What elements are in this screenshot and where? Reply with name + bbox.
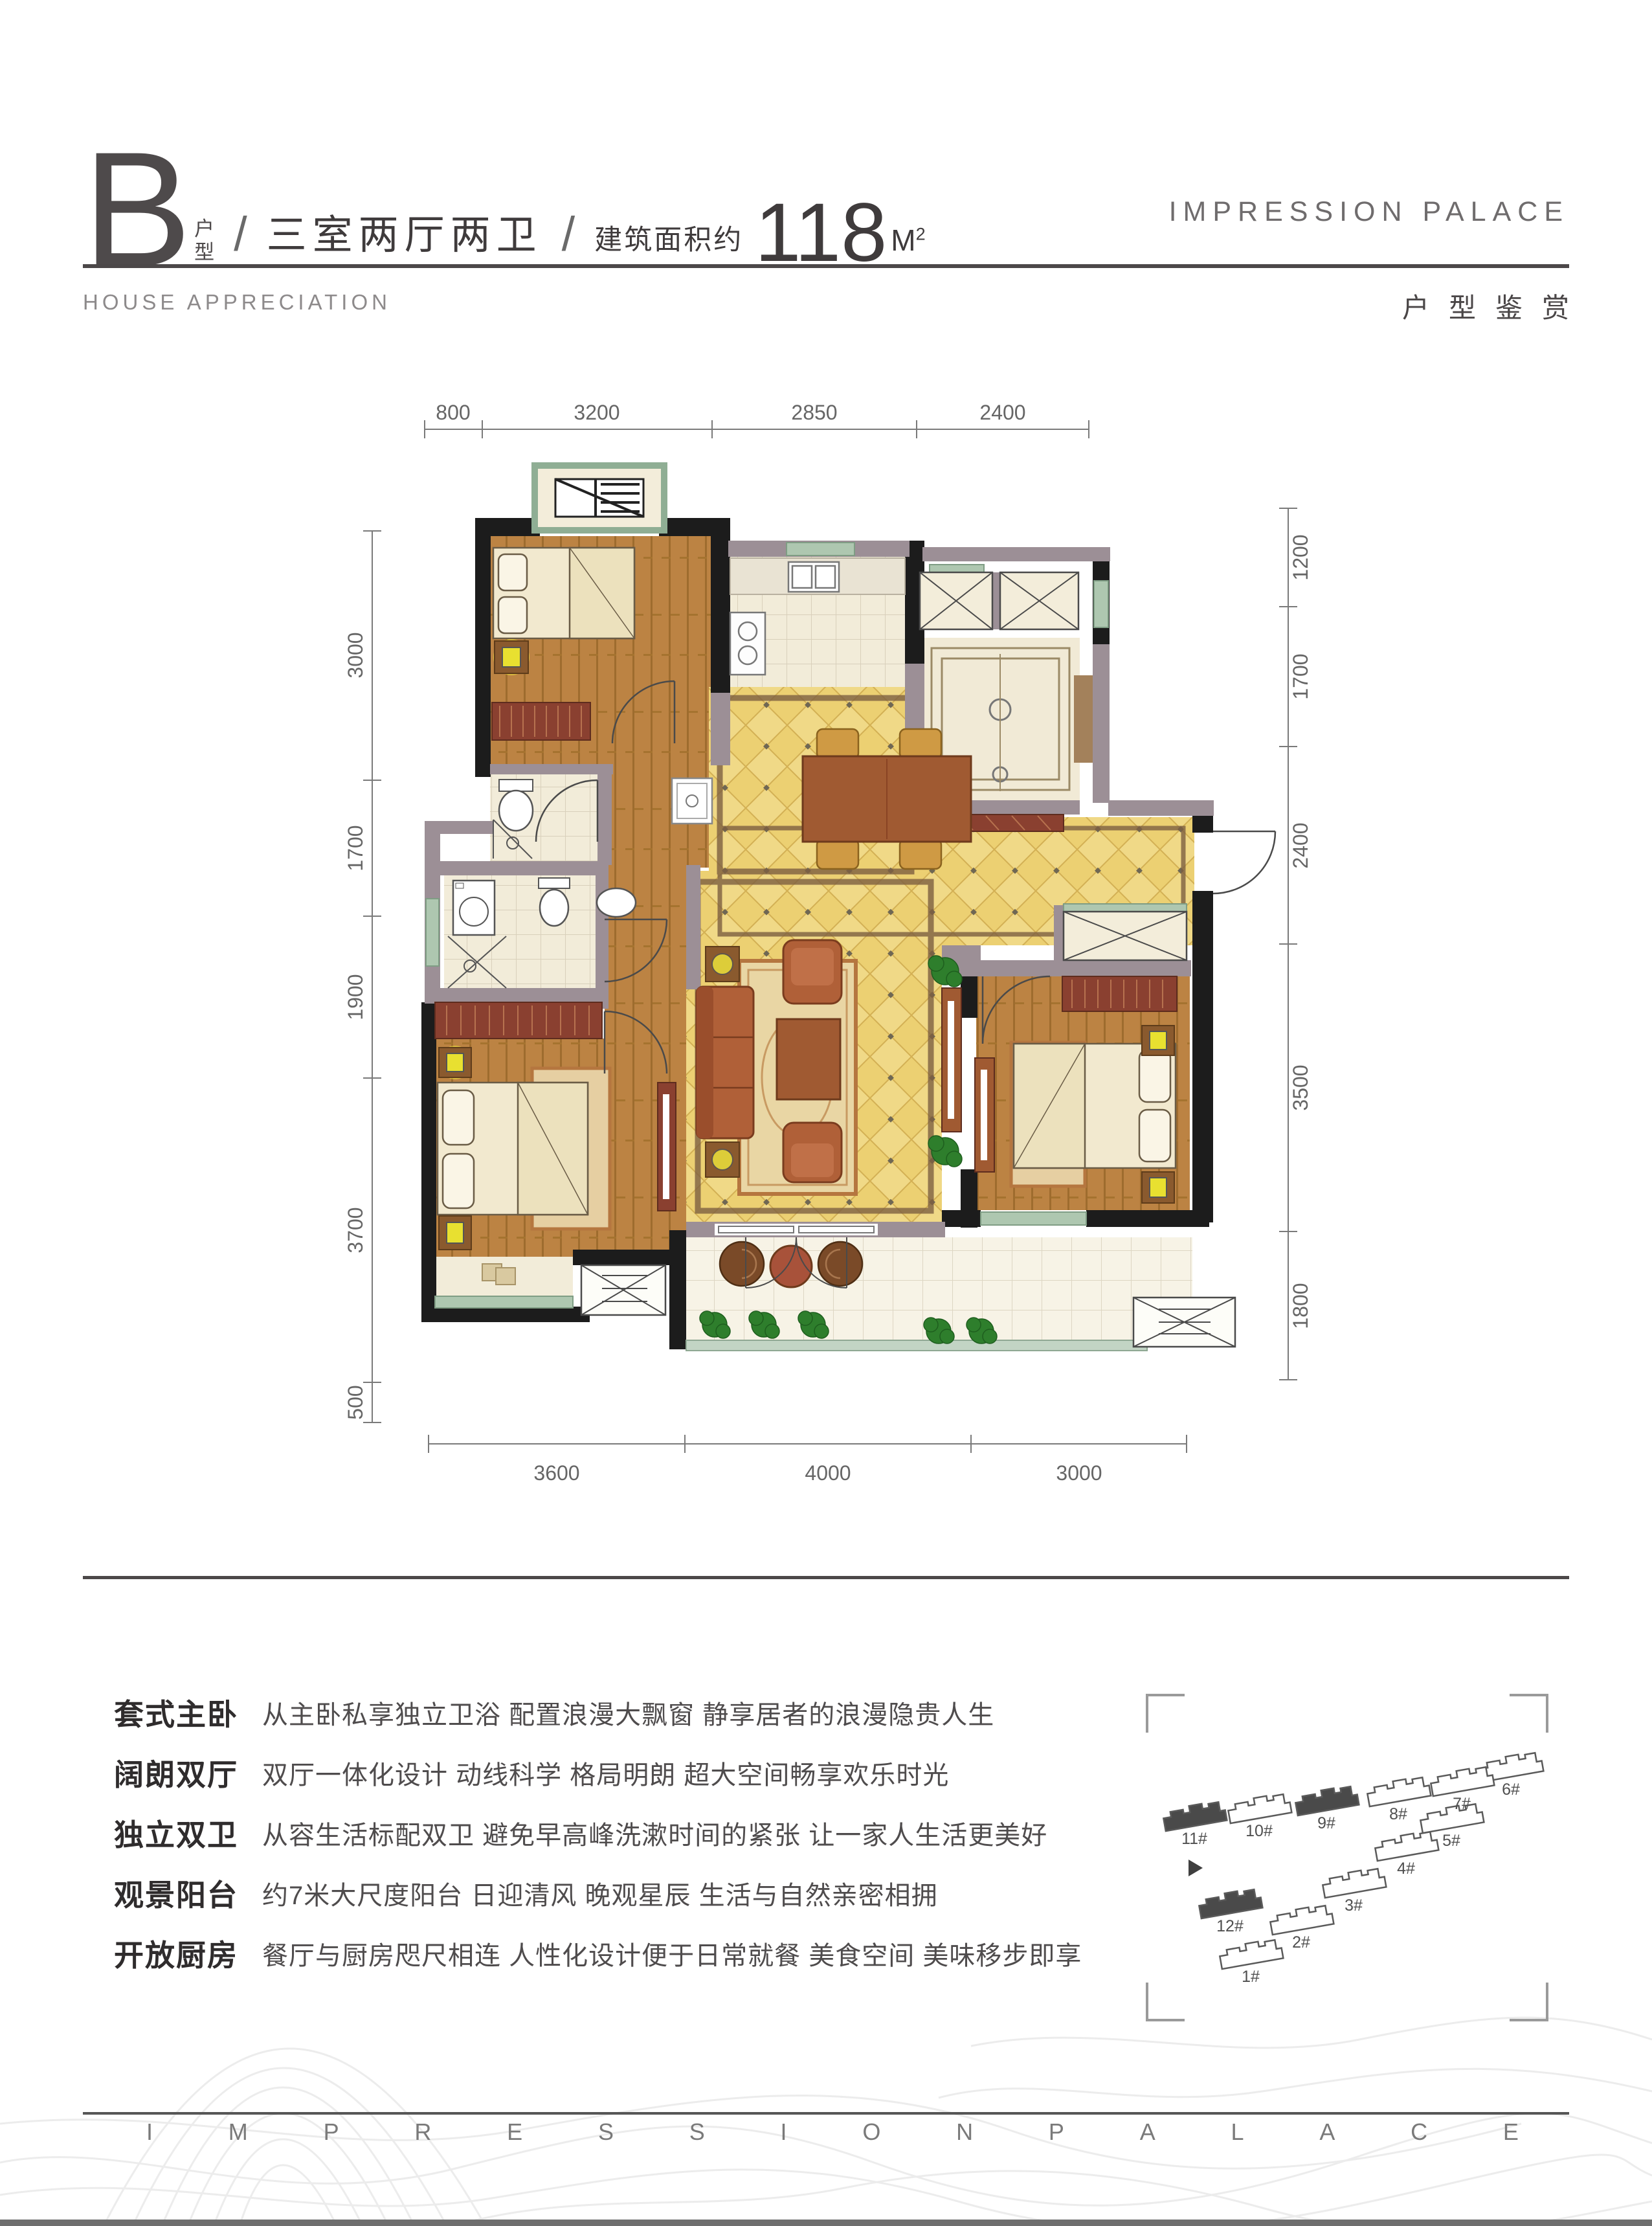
vanity: [672, 778, 712, 824]
footer-letter: N: [956, 2119, 973, 2146]
site-building-label: 9#: [1317, 1814, 1335, 1832]
armchair-cushion: [791, 1143, 834, 1177]
bottom-bar: [0, 2220, 1652, 2226]
kitchen-sink: [788, 562, 839, 592]
side-table-lamp-icon: [706, 947, 739, 982]
site-building-label: 7#: [1453, 1795, 1471, 1813]
dim-top-1: 3200: [574, 401, 619, 424]
layout-text: 三室两厅两卫: [267, 202, 542, 260]
site-building-11: 11#: [1162, 1800, 1231, 1854]
entry-door: [1213, 831, 1275, 894]
feature-description: 双厅一体化设计 动线科学 格局明朗 超大空间畅享欢乐时光: [262, 1754, 949, 1792]
sink-icon: [597, 888, 636, 917]
site-building-label: 3#: [1345, 1896, 1363, 1915]
toilet-icon: [540, 890, 568, 926]
header-rule: [83, 264, 1569, 268]
site-map-buildings: 1#2#3#4#5#6#7#8#9#10#11#12#: [1162, 1751, 1547, 1992]
feature-row: 观景阳台 约7米大尺度阳台 日迎清风 晚观星辰 生活与自然亲密相拥: [114, 1872, 938, 1915]
site-building-label: 5#: [1442, 1832, 1460, 1850]
ac-platform-left: [581, 1265, 665, 1315]
site-building-label: 8#: [1389, 1805, 1407, 1823]
site-building-label: 2#: [1292, 1933, 1310, 1951]
plan-title: B 户 型 / 三室两厅两卫 / 建筑面积约 118 M2: [83, 154, 926, 265]
site-building-10: 10#: [1227, 1792, 1295, 1847]
feature-description: 约7米大尺度阳台 日迎清风 晚观星辰 生活与自然亲密相拥: [262, 1874, 938, 1912]
site-building-9: 9#: [1294, 1784, 1363, 1838]
footer-letter: P: [1049, 2119, 1064, 2146]
area-prefix: 建筑面积约: [594, 218, 743, 258]
side-table-lamp-icon: [706, 1142, 739, 1177]
bed-icon: [493, 548, 634, 638]
shaft-1: [920, 572, 992, 629]
balcony-chair: [818, 1242, 862, 1286]
footer-letter: A: [1140, 2119, 1155, 2146]
feature-row: 阔朗双厅 双厅一体化设计 动线科学 格局明朗 超大空间畅享欢乐时光: [114, 1751, 949, 1794]
bed-icon: [1014, 1044, 1176, 1168]
toilet-icon: [499, 791, 533, 831]
dim-left-3: 3700: [344, 1207, 367, 1253]
section-divider: [83, 1576, 1569, 1579]
balcony-chair: [720, 1242, 764, 1286]
area-unit: M2: [891, 223, 925, 258]
dim-left-4: 500: [344, 1385, 367, 1419]
shaft-window: [930, 565, 984, 572]
dim-bottom-0: 3600: [533, 1461, 579, 1485]
subtitle-english: HOUSE APPRECIATION: [83, 290, 391, 315]
feature-description: 从主卧私享独立卫浴 配置浪漫大飘窗 静享居者的浪漫隐贵人生: [262, 1694, 994, 1731]
footer-letter: E: [1503, 2119, 1519, 2146]
feature-row: 开放厨房 餐厅与厨房咫尺相连 人性化设计便于日常就餐 美食空间 美味移步即享: [114, 1932, 1082, 1975]
separator-slash: /: [562, 207, 575, 262]
bedroom3-window: [981, 1212, 1086, 1225]
platform-window: [1064, 904, 1187, 912]
nightstand-lamp-icon: [438, 1046, 472, 1079]
wardrobe-bedroom3: [1062, 976, 1177, 1011]
site-map: 1#2#3#4#5#6#7#8#9#10#11#12#: [1139, 1683, 1554, 2033]
washer-icon: [453, 881, 495, 935]
footer-rule: [83, 2112, 1569, 2115]
wardrobe-master: [435, 1002, 602, 1039]
bay-cushion: [496, 1268, 515, 1285]
equipment-platform: [1064, 912, 1187, 960]
footer-letter: C: [1411, 2119, 1427, 2146]
dim-right-2: 2400: [1289, 822, 1312, 868]
footer-letter: L: [1231, 2119, 1244, 2146]
plan-letter: B: [83, 154, 189, 265]
bed-icon: [438, 1083, 588, 1215]
site-building-label: 4#: [1397, 1860, 1415, 1878]
dim-right-1: 1700: [1289, 653, 1312, 699]
site-building-label: 6#: [1502, 1781, 1520, 1799]
footer-letter: A: [1319, 2119, 1335, 2146]
subtitle-chinese: 户型鉴赏: [1402, 286, 1589, 326]
shaft-2: [1000, 572, 1078, 629]
feature-row: 独立双卫 从容生活标配双卫 避免早高峰洗漱时间的紧张 让一家人生活更美好: [114, 1812, 1047, 1854]
footer-letter: S: [689, 2119, 705, 2146]
footer-letter: I: [781, 2119, 787, 2146]
bay-window-bedroom2: [535, 466, 664, 530]
feature-label: 观景阳台: [114, 1872, 262, 1915]
dining-chair: [817, 729, 858, 759]
site-building-12: 12#: [1198, 1887, 1266, 1942]
nightstand-lamp-icon: [1142, 1172, 1174, 1203]
footer-letter: O: [862, 2119, 880, 2146]
dim-left-0: 3000: [344, 632, 367, 678]
feature-description: 从容生活标配双卫 避免早高峰洗漱时间的紧张 让一家人生活更美好: [262, 1814, 1047, 1852]
nightstand-lamp-icon: [1142, 1025, 1174, 1056]
dim-right-3: 3500: [1289, 1064, 1312, 1110]
separator-slash: /: [234, 207, 247, 262]
site-building-label: 12#: [1216, 1917, 1244, 1935]
stove: [730, 613, 765, 675]
dining-chair: [900, 839, 941, 869]
dim-left-2: 1900: [344, 974, 367, 1020]
dim-top-2: 2850: [791, 401, 837, 424]
nightstand-lamp-icon: [493, 639, 530, 675]
footer-letter: R: [414, 2119, 431, 2146]
dim-top-3: 2400: [979, 401, 1025, 424]
wardrobe-bedroom2: [492, 703, 590, 740]
dim-right-0: 1200: [1289, 534, 1312, 580]
footer-letter: I: [146, 2119, 153, 2146]
ac-platform-right: [1133, 1298, 1235, 1347]
bath-window: [426, 899, 439, 966]
dim-left-1: 1700: [344, 825, 367, 871]
site-building-label: 10#: [1245, 1822, 1273, 1840]
dim-bottom-1: 4000: [805, 1461, 851, 1485]
dim-bottom-2: 3000: [1056, 1461, 1102, 1485]
feature-label: 套式主卧: [114, 1691, 262, 1734]
site-map-marker-icon: [1189, 1860, 1203, 1876]
feature-label: 开放厨房: [114, 1932, 262, 1975]
site-building-1: 1#: [1218, 1938, 1287, 1992]
site-building-label: 1#: [1242, 1968, 1260, 1986]
footer-brand-letters: IMPRESSIONPALACE: [146, 2119, 1519, 2146]
site-map-brackets: [1147, 1695, 1547, 2020]
feature-label: 独立双卫: [114, 1812, 262, 1854]
dim-top-0: 800: [436, 401, 470, 424]
balcony-rail: [686, 1340, 1147, 1351]
footer-letter: P: [324, 2119, 339, 2146]
coffee-table: [777, 1019, 840, 1099]
feature-description: 餐厅与厨房咫尺相连 人性化设计便于日常就餐 美食空间 美味移步即享: [262, 1935, 1082, 1972]
feature-label: 阔朗双厅: [114, 1751, 262, 1794]
nightstand-lamp-icon: [438, 1216, 472, 1250]
tv-console: [658, 1083, 676, 1211]
sliding-panel-1: [942, 988, 961, 1132]
dim-right-4: 1800: [1289, 1283, 1312, 1329]
armchair-cushion: [791, 948, 834, 985]
site-building-4: 4#: [1374, 1830, 1442, 1883]
floor-plan: 800 3200 2850 2400 3600 4000 3000 3000 1…: [337, 388, 1346, 1502]
kitchen-window: [787, 543, 854, 556]
header: B 户 型 / 三室两厅两卫 / 建筑面积约 118 M2 IMPRESSION…: [83, 127, 1569, 265]
site-building-3: 3#: [1321, 1867, 1390, 1920]
plan-letter-suffix: 户 型: [194, 218, 214, 264]
area-value: 118: [755, 201, 887, 265]
sliding-panel-2: [975, 1058, 994, 1172]
dining-chair: [900, 729, 941, 759]
footer-letter: S: [598, 2119, 614, 2146]
site-building-label: 11#: [1181, 1830, 1207, 1848]
sofa-icon: [697, 987, 753, 1138]
footer-letter: M: [229, 2119, 248, 2146]
feature-row: 套式主卧 从主卧私享独立卫浴 配置浪漫大飘窗 静享居者的浪漫隐贵人生: [114, 1691, 994, 1734]
page: { "header": { "plan_letter": "B", "plan_…: [0, 0, 1652, 2226]
balcony-doors: [715, 1224, 878, 1235]
footer-letter: E: [507, 2119, 522, 2146]
core-window: [1094, 581, 1108, 627]
brand-english: IMPRESSION PALACE: [1169, 196, 1569, 228]
dining-chair: [817, 839, 858, 869]
master-bay-sill: [435, 1296, 573, 1308]
